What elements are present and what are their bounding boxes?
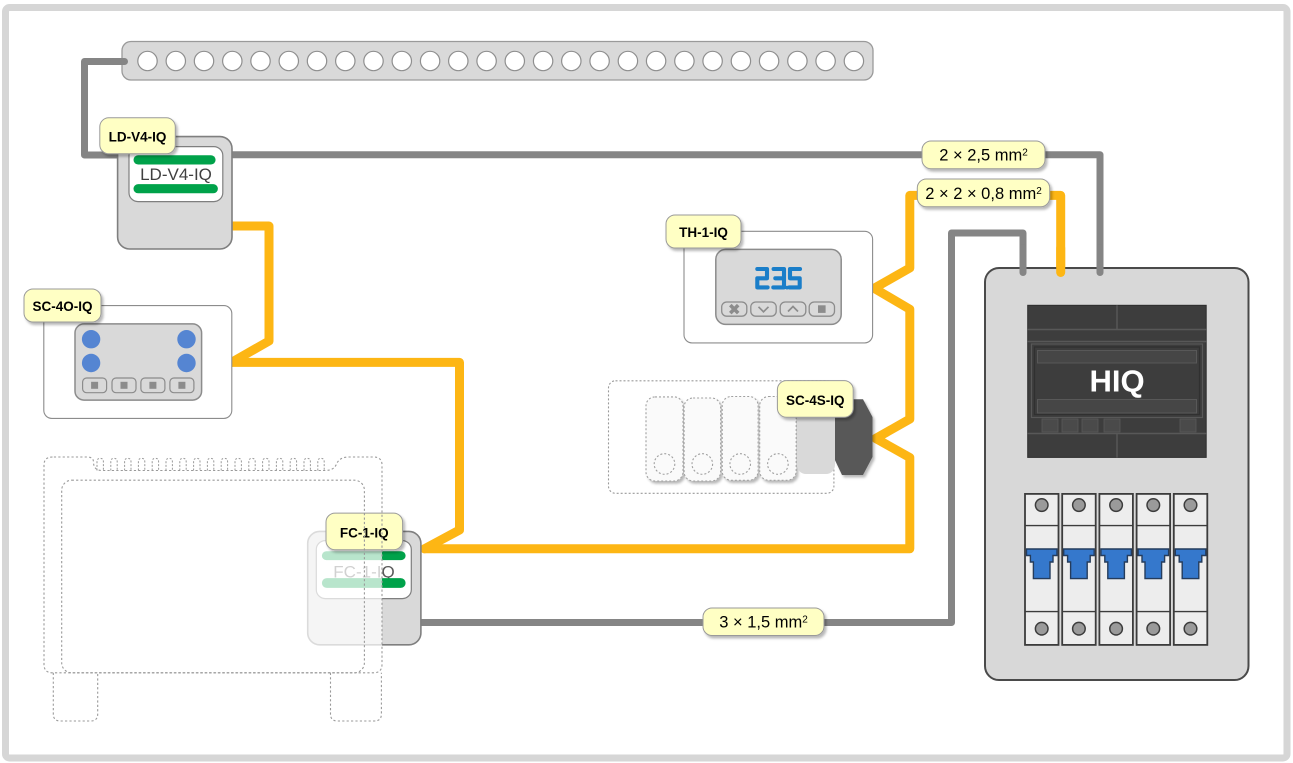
svg-text:3 × 1,5 mm2: 3 × 1,5 mm2: [719, 613, 808, 631]
svg-text:TH-1-IQ: TH-1-IQ: [679, 225, 728, 240]
svg-text:HIQ: HIQ: [1089, 364, 1144, 399]
svg-text:LD-V4-IQ: LD-V4-IQ: [140, 165, 212, 184]
svg-text:SC-4S-IQ: SC-4S-IQ: [786, 393, 845, 408]
svg-text:2 × 2,5 mm2: 2 × 2,5 mm2: [939, 147, 1028, 165]
svg-text:2 × 2 × 0,8 mm2: 2 × 2 × 0,8 mm2: [925, 185, 1042, 203]
svg-text:LD-V4-IQ: LD-V4-IQ: [109, 130, 167, 145]
svg-text:SC-4O-IQ: SC-4O-IQ: [32, 299, 92, 314]
